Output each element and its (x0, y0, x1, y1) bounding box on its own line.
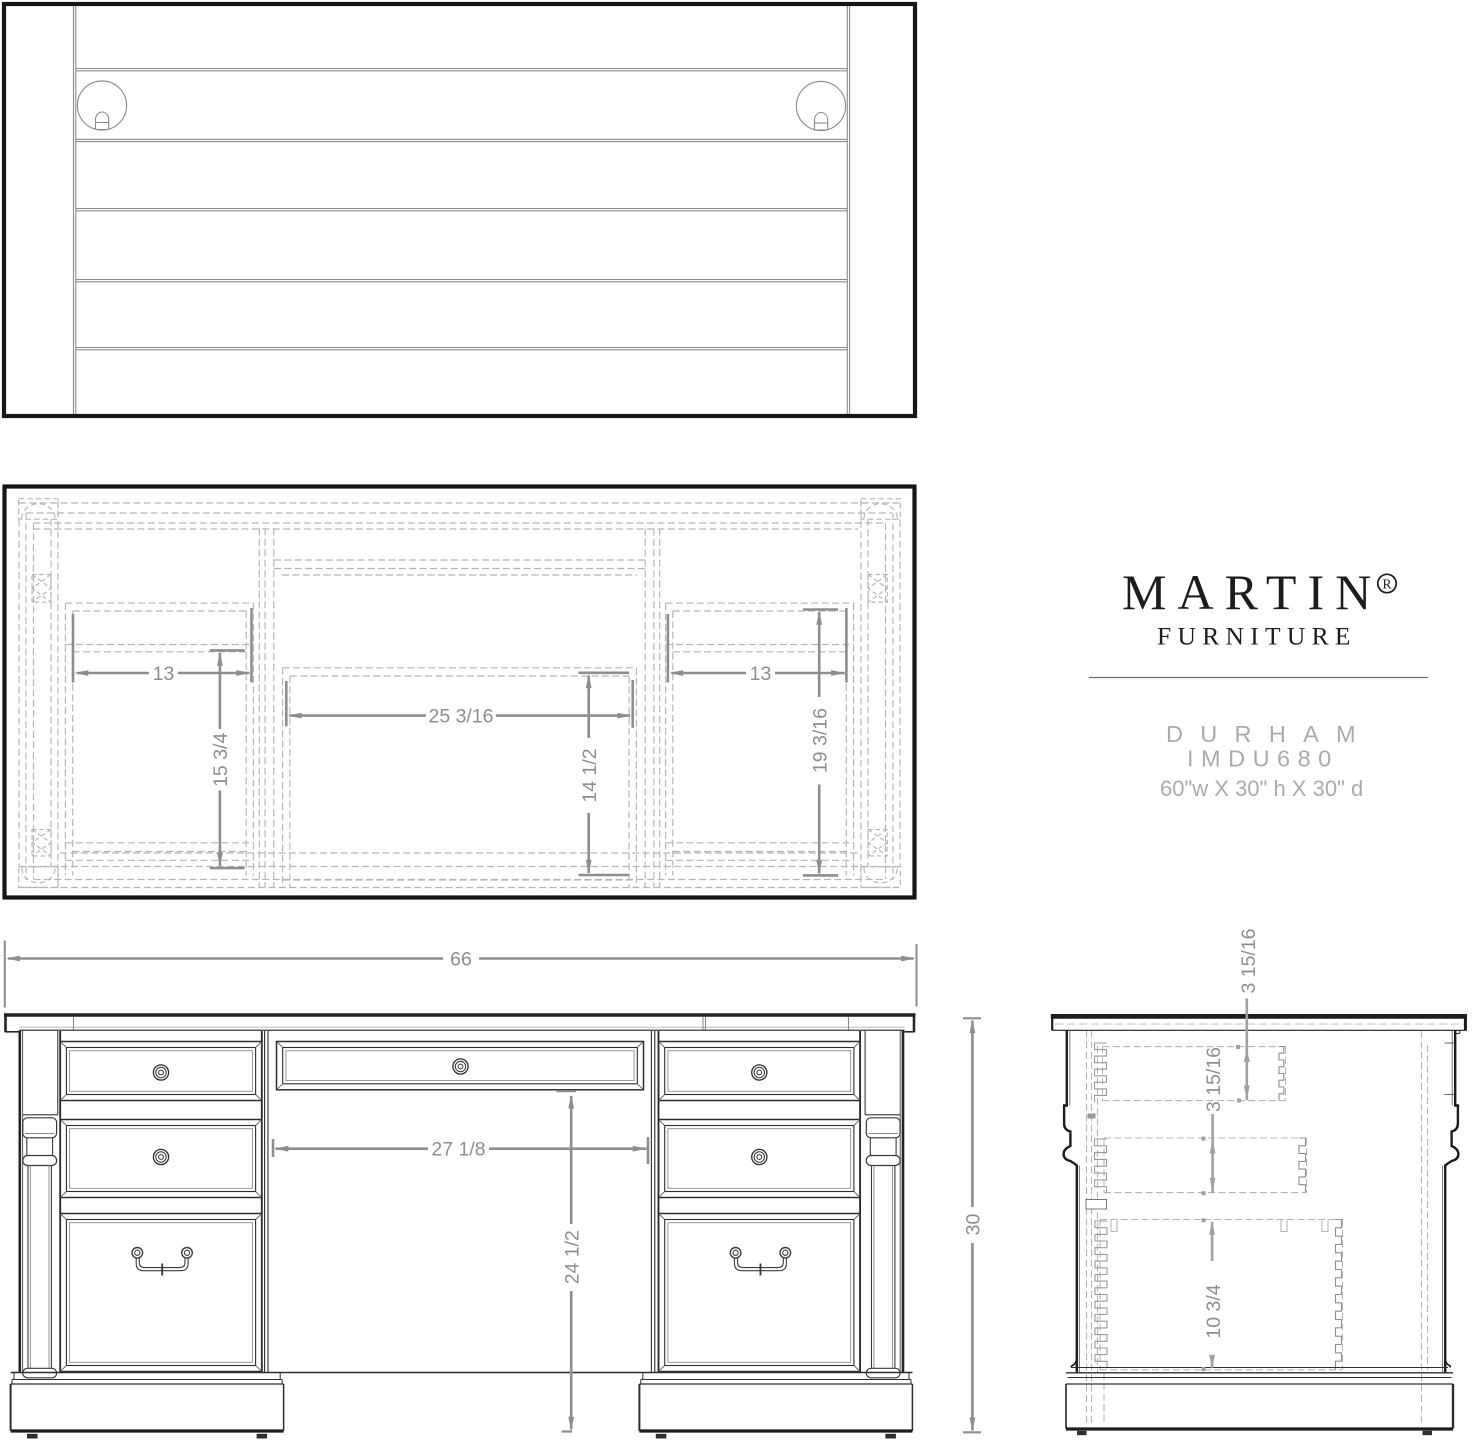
svg-text:IMDU680: IMDU680 (1187, 746, 1339, 772)
svg-text:27 1/8: 27 1/8 (431, 1139, 485, 1161)
svg-text:3 15/16: 3 15/16 (1238, 928, 1260, 993)
svg-text:MARTIN: MARTIN (1122, 564, 1382, 620)
svg-text:13: 13 (750, 663, 772, 685)
svg-text:30: 30 (963, 1214, 985, 1236)
svg-text:10 3/4: 10 3/4 (1203, 1284, 1225, 1338)
svg-text:DURHAM: DURHAM (1166, 721, 1373, 747)
svg-text:60"w X 30" h X 30" d: 60"w X 30" h X 30" d (1160, 776, 1363, 801)
svg-text:24 1/2: 24 1/2 (562, 1230, 584, 1284)
svg-text:19 3/16: 19 3/16 (810, 708, 832, 773)
svg-text:66: 66 (450, 949, 472, 971)
svg-text:R: R (1382, 577, 1391, 592)
svg-text:14 1/2: 14 1/2 (579, 748, 601, 802)
svg-text:FURNITURE: FURNITURE (1157, 622, 1357, 651)
svg-text:25 3/16: 25 3/16 (428, 706, 493, 728)
svg-text:15 3/4: 15 3/4 (210, 733, 232, 787)
svg-text:3 15/16: 3 15/16 (1203, 1047, 1225, 1112)
svg-text:13: 13 (153, 663, 175, 685)
